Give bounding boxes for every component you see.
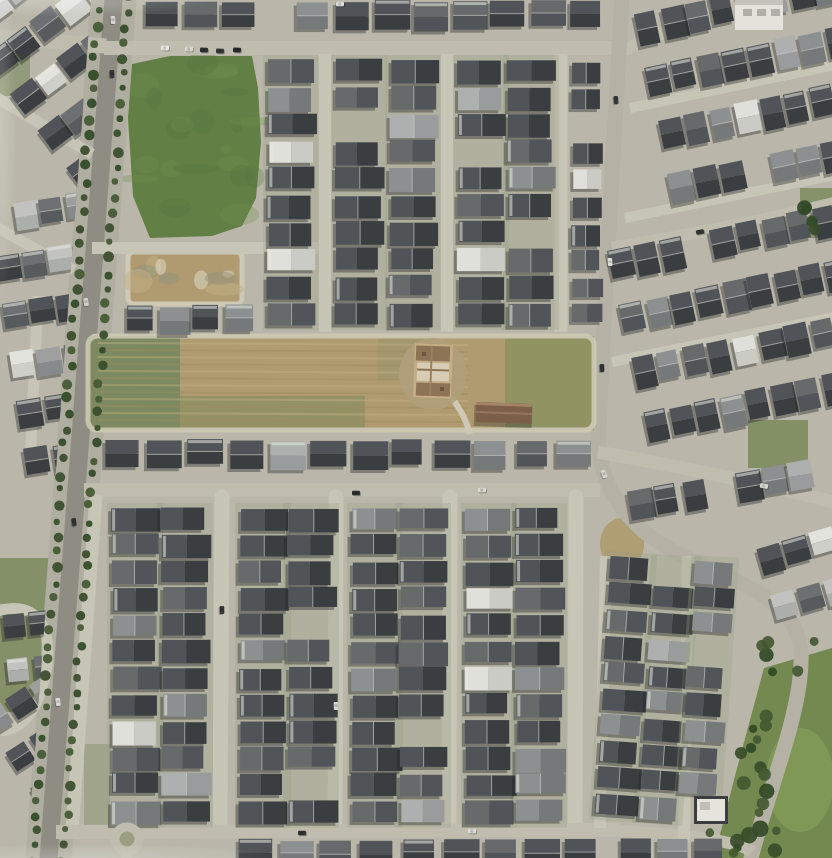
photo-tint-overlay — [0, 0, 832, 858]
satellite-canvas — [0, 0, 832, 858]
satellite-map-view[interactable] — [0, 0, 832, 858]
